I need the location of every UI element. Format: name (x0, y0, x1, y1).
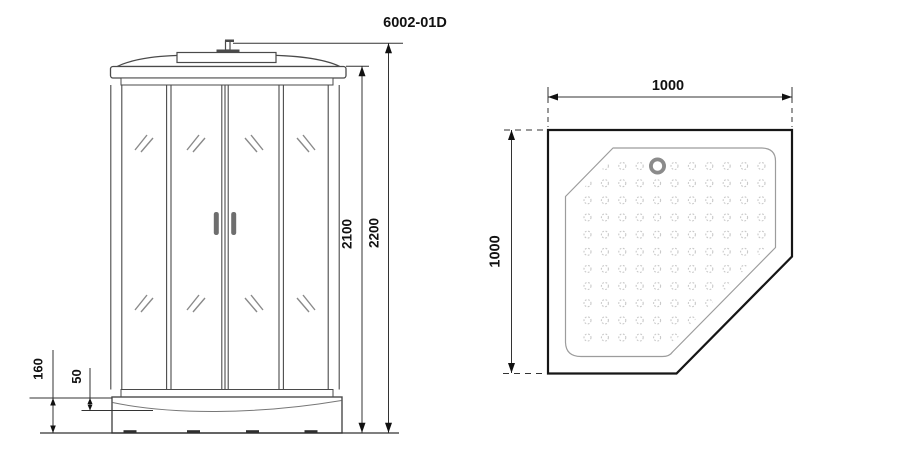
door-handle-right (231, 212, 236, 235)
dim-label-cabin-height: 2100 (340, 219, 355, 249)
tray-plan-view (548, 130, 792, 374)
bottom-frame-rail (121, 390, 333, 398)
shower-tray-base (112, 397, 342, 433)
dim-label-tray-width: 1000 (652, 78, 684, 94)
drain-icon (651, 159, 664, 172)
dim-label-tray-depth: 1000 (488, 235, 504, 267)
dim-label-tray-lip: 50 (69, 369, 84, 383)
top-inner-rail (121, 78, 333, 85)
shower-cabin-diagram: 6002-01D (0, 0, 907, 468)
technical-drawing-sheet: 6002-01D (0, 0, 907, 468)
drawing-title: 6002-01D (383, 15, 447, 31)
door-handle-left (214, 212, 219, 235)
front-elevation-view (111, 40, 347, 434)
top-frame-band (111, 67, 347, 79)
dim-label-base-height: 160 (31, 358, 46, 380)
water-inlet-icon (217, 40, 240, 53)
roof-plate (177, 53, 276, 63)
frame-posts (111, 85, 339, 390)
dim-label-overall-height: 2200 (367, 218, 382, 248)
